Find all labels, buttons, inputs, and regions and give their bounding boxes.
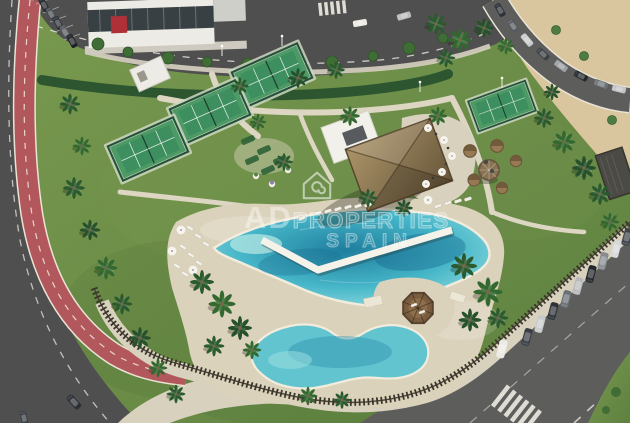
cocoon-daybed (464, 145, 477, 158)
parasol (438, 168, 446, 176)
cocoon-daybed (510, 155, 521, 166)
parasol (424, 124, 432, 132)
red-storefront-awning (111, 16, 128, 34)
pool-gazebo (403, 293, 433, 323)
parasol (189, 266, 198, 275)
cocoon-daybed (496, 182, 507, 193)
parasol (424, 196, 433, 205)
cocoon-daybed (468, 174, 480, 186)
parasol (448, 152, 456, 160)
parasol (168, 247, 177, 256)
parasol (177, 226, 186, 235)
aerial-resort-photo: AD PROPERTIES SPAIN (0, 0, 630, 423)
cocoon-daybed (491, 140, 504, 153)
parasol (422, 180, 430, 188)
scene-canvas (0, 0, 630, 423)
parasol (440, 136, 448, 144)
